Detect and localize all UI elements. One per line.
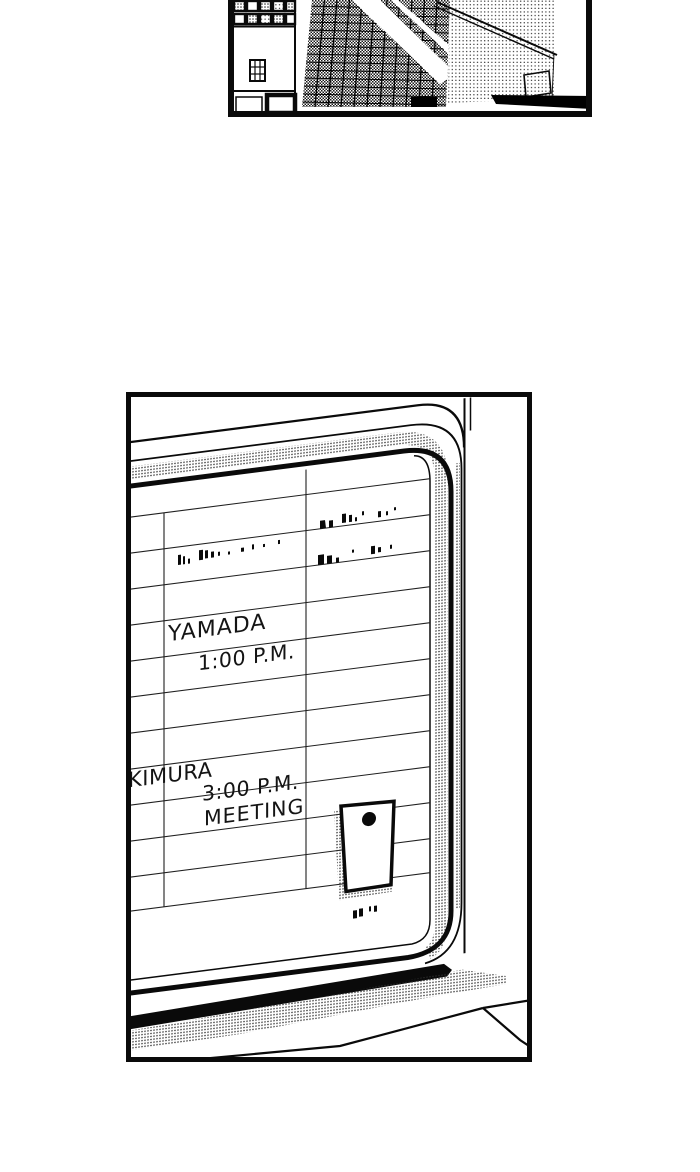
small-window [250,60,265,81]
glass-tower [302,0,470,107]
whiteboard: YAMADA 1:00 P.M. KIMURA 3:00 P.M. MEETIN… [126,392,506,1058]
tower-side-face [434,0,557,103]
comic-panel-whiteboard: YAMADA 1:00 P.M. KIMURA 3:00 P.M. MEETIN… [126,392,532,1062]
dark-window-band [411,97,437,107]
manga-page: YAMADA 1:00 P.M. KIMURA 3:00 P.M. MEETIN… [0,0,700,1172]
entrance-right [267,95,295,113]
comic-panel-city [228,0,592,117]
entrance-left [236,97,262,113]
note-card [337,799,394,897]
